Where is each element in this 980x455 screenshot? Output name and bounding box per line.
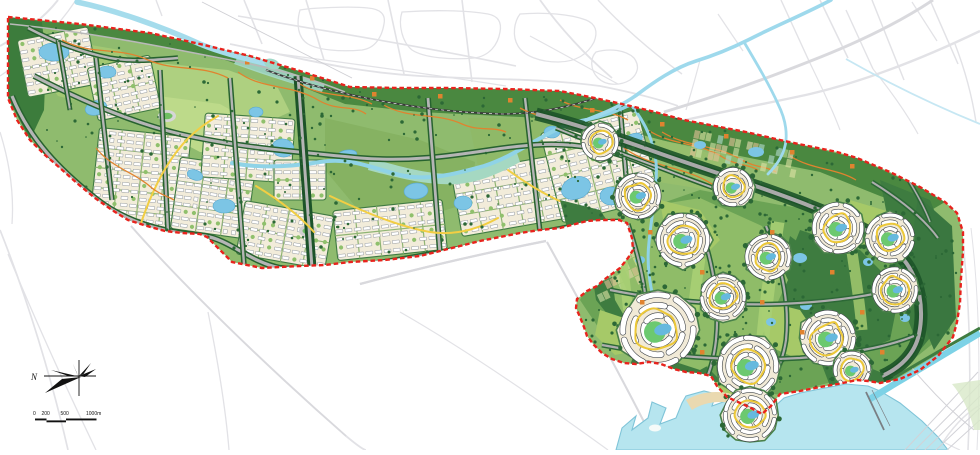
- svg-text:N: N: [30, 372, 38, 382]
- svg-text:1000m: 1000m: [86, 411, 101, 417]
- svg-text:200: 200: [42, 411, 51, 417]
- svg-text:500: 500: [61, 411, 70, 417]
- svg-text:0: 0: [33, 411, 36, 417]
